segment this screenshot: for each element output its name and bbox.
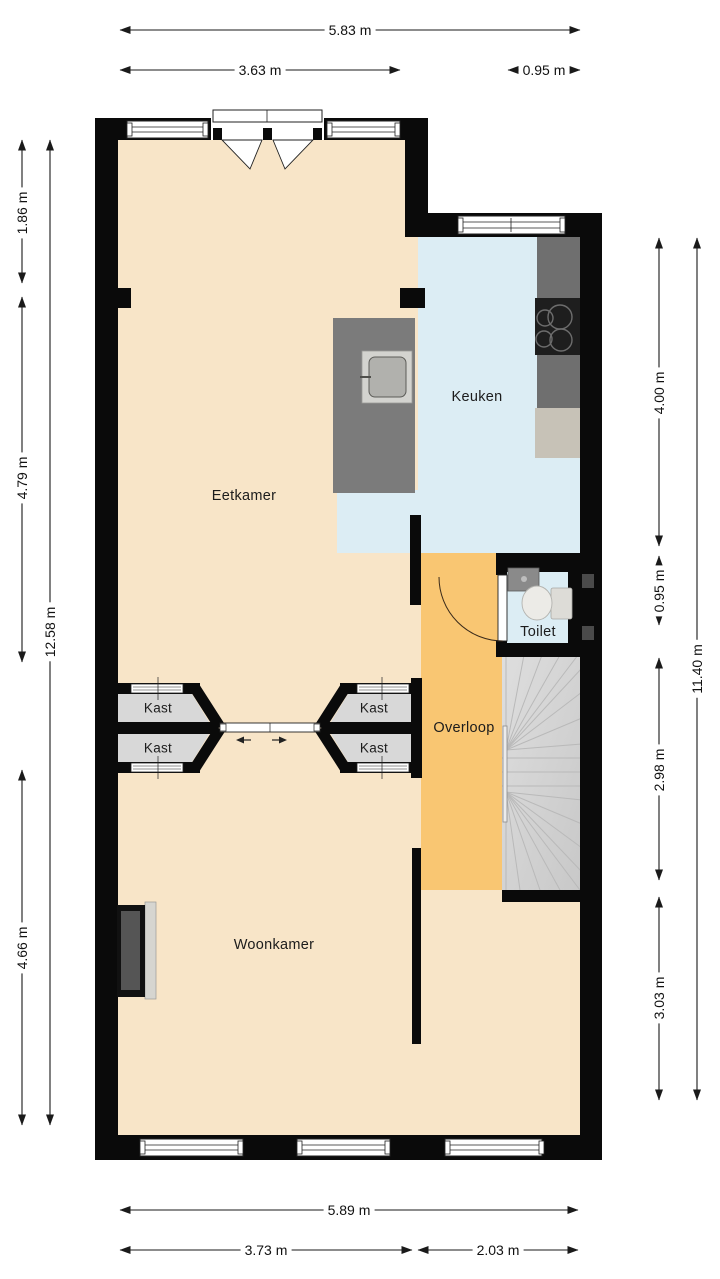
dim-left-3: 4.66 m (14, 923, 30, 974)
wall-left (95, 118, 118, 1160)
sink-icon (369, 357, 406, 397)
wall-woonkamer-stairs (412, 848, 421, 1044)
window (297, 1139, 390, 1156)
floor-plan-canvas (0, 0, 720, 1279)
wall-right (580, 213, 602, 1160)
room-label-overloop: Overloop (433, 720, 494, 736)
dim-left-2: 4.79 m (14, 453, 30, 504)
dim-right-3: 2.98 m (651, 745, 667, 796)
refrigerator-counter (535, 408, 580, 458)
dim-right-1: 4.00 m (651, 368, 667, 419)
wall-stairs-bottom (502, 890, 582, 902)
room-label-kast-2: Kast (144, 741, 172, 756)
dim-bottom-right: 2.03 m (473, 1242, 524, 1258)
window (140, 1139, 243, 1156)
dim-top-left: 3.63 m (235, 62, 286, 78)
wall-upper-right-vertical (405, 118, 428, 237)
dim-top-total: 5.83 m (325, 22, 376, 38)
room-label-eetkamer: Eetkamer (212, 488, 276, 504)
wall-toilet-bottom (496, 643, 580, 657)
room-label-kast-3: Kast (360, 701, 388, 716)
dim-left-total: 12.58 m (42, 603, 58, 662)
window (127, 121, 208, 138)
dim-right-4: 3.03 m (651, 973, 667, 1024)
dim-right-2: 0.95 m (651, 566, 667, 617)
stair-handrail (503, 726, 507, 822)
fireplace-icon (117, 902, 156, 999)
toilet-bowl-icon (522, 586, 572, 620)
cooktop-icon (535, 298, 582, 355)
room-label-woonkamer: Woonkamer (234, 937, 315, 953)
window (327, 121, 400, 138)
dim-left-1: 1.86 m (14, 188, 30, 239)
room-label-toilet: Toilet (520, 624, 556, 640)
winder-staircase (502, 655, 582, 890)
kitchen-island (333, 318, 415, 493)
dim-right-total: 11.40 m (689, 640, 705, 698)
room-label-kast-1: Kast (144, 701, 172, 716)
room-label-kast-4: Kast (360, 741, 388, 756)
window (445, 1139, 544, 1156)
wall-stub-left (118, 288, 131, 308)
window (458, 216, 565, 234)
wall-stub-right (400, 288, 425, 308)
dim-top-right: 0.95 m (519, 62, 570, 78)
floor-plan: Eetkamer Keuken Overloop Toilet Woonkame… (0, 0, 720, 1279)
dim-bottom-left: 3.73 m (241, 1242, 292, 1258)
dim-bottom-total: 5.89 m (324, 1202, 375, 1218)
wall-eetkamer-overloop (410, 515, 421, 605)
room-label-keuken: Keuken (452, 389, 503, 405)
